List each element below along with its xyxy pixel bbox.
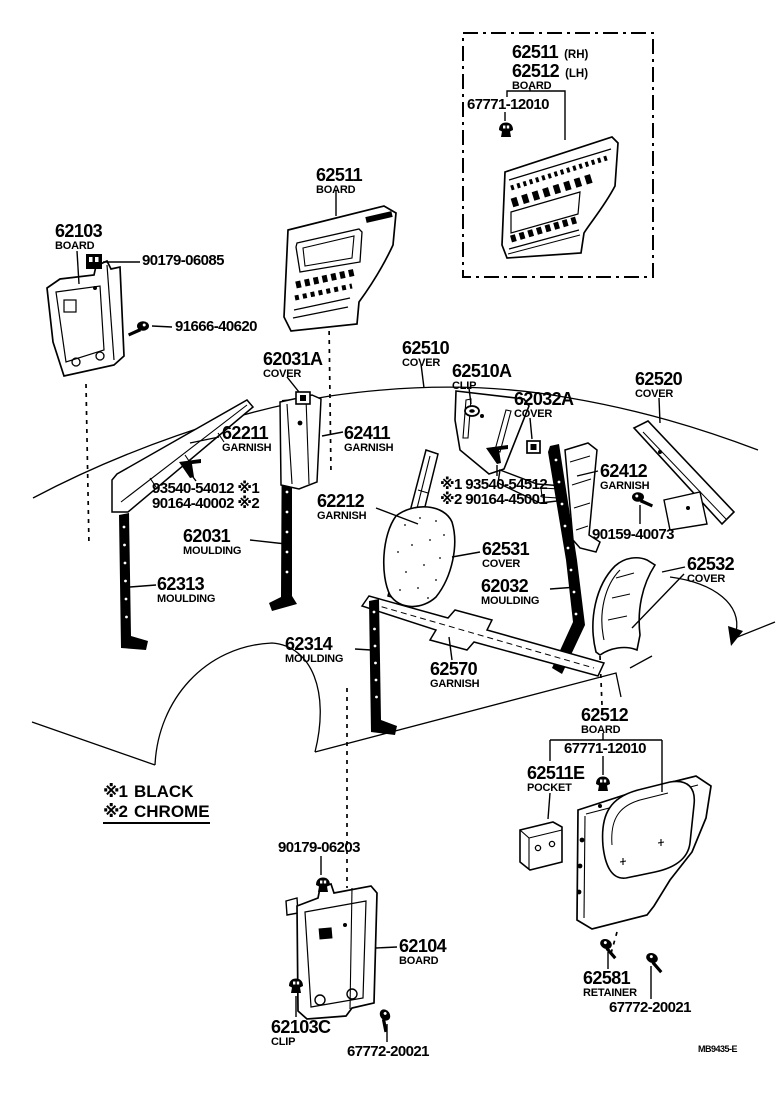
callout-screws-center: ※1 93540-54512 ※2 90164-45001 — [440, 477, 547, 508]
callout-62511e: 62511E POCKET — [527, 764, 584, 795]
legend-marker: ※1 — [103, 783, 127, 802]
callout-90159-40073: 90159-40073 — [592, 527, 674, 542]
callout-90179-06085: 90179-06085 — [142, 253, 224, 268]
part-name: BOARD — [512, 81, 588, 92]
part-number: 62512 — [512, 62, 559, 80]
screw-icon-67772-20021-right — [642, 951, 667, 974]
callout-62511: 62511 BOARD — [316, 166, 362, 197]
clip-icon-67771-12010 — [596, 777, 610, 792]
part-number: 62511 — [512, 43, 558, 61]
callout-62314: 62314 MOULDING — [285, 635, 343, 666]
tscrew-icon-93540-54012 — [179, 459, 201, 478]
screw-icon-62581 — [596, 937, 621, 960]
callout-62211: 62211 GARNISH — [222, 424, 271, 455]
callout-62532: 62532 COVER — [687, 555, 734, 586]
legend-row-black: ※1 BLACK — [103, 783, 210, 803]
callout-62412: 62412 GARNISH — [600, 462, 649, 493]
part-62511e-pocket — [520, 822, 562, 870]
clip-icon-90179-06085 — [86, 254, 102, 269]
callout-91666-40620: 91666-40620 — [175, 319, 257, 334]
callout-67772-20021-bottom: 67772-20021 — [347, 1044, 429, 1059]
callout-inset-board: 62511(RH) 62512(LH) BOARD — [512, 43, 588, 93]
part-62511-board — [284, 206, 396, 331]
part-door-board-inset — [502, 137, 618, 258]
callout-62103c: 62103C CLIP — [271, 1018, 330, 1049]
callout-62031: 62031 MOULDING — [183, 527, 241, 558]
finish-legend: ※1 BLACK ※2 CHROME — [103, 783, 210, 824]
callout-screws-front: 93540-54012 ※1 90164-40002 ※2 — [152, 481, 259, 512]
callout-67771-12010-lower: 67771-12010 — [564, 741, 646, 756]
callout-67772-20021-right: 67772-20021 — [609, 1000, 691, 1015]
clip-icon — [499, 123, 513, 138]
parts-diagram-page: 62511(RH) 62512(LH) BOARD 67771-12010 62… — [0, 0, 776, 1118]
part-62411-garnish — [280, 395, 321, 489]
part-62313-moulding — [119, 513, 148, 650]
legend-label: CHROME — [134, 803, 210, 822]
callout-62212: 62212 GARNISH — [317, 492, 366, 523]
screw-icon-90159-40073 — [632, 492, 653, 507]
diagram-artwork — [0, 0, 776, 1118]
side-suffix: (LH) — [565, 69, 588, 81]
clip-icon-62031a — [296, 392, 310, 404]
callout-62531: 62531 COVER — [482, 540, 529, 571]
callout-62031a: 62031A COVER — [263, 350, 322, 381]
callout-62510: 62510 COVER — [402, 339, 449, 370]
callout-62520: 62520 COVER — [635, 370, 682, 401]
callout-62512: 62512 BOARD — [581, 706, 628, 737]
part-62512-board — [577, 776, 711, 929]
clip-icon-62510a — [465, 406, 479, 416]
legend-label: BLACK — [134, 783, 194, 802]
callout-62581: 62581 RETAINER — [583, 969, 637, 1000]
part-62103-board — [47, 261, 124, 376]
screw-icon-91666-40620 — [128, 321, 149, 336]
callout-62313: 62313 MOULDING — [157, 575, 215, 606]
callout-62032: 62032 MOULDING — [481, 577, 539, 608]
screw-icon-67772-20021-bottom — [373, 1007, 397, 1033]
callout-90179-06203: 90179-06203 — [278, 840, 360, 855]
legend-row-chrome: ※2 CHROME — [103, 803, 210, 825]
clip-icon-62032a — [527, 441, 540, 453]
part-62314-moulding — [369, 599, 397, 735]
callout-67771-12010-inset: 67771-12010 — [467, 97, 549, 112]
figure-code: MB9435-E — [698, 1044, 737, 1054]
side-suffix: (RH) — [564, 50, 588, 62]
legend-marker: ※2 — [103, 803, 127, 822]
callout-62103: 62103 BOARD — [55, 222, 102, 253]
part-62531-cover — [384, 507, 455, 607]
callout-62104: 62104 BOARD — [399, 937, 446, 968]
callout-62570: 62570 GARNISH — [430, 660, 479, 691]
part-62104-board — [286, 884, 377, 1019]
callout-62510a: 62510A CLIP — [452, 362, 511, 393]
part-62532-cover — [593, 558, 655, 655]
callout-62032a: 62032A COVER — [514, 390, 573, 421]
callout-62411: 62411 GARNISH — [344, 424, 393, 455]
